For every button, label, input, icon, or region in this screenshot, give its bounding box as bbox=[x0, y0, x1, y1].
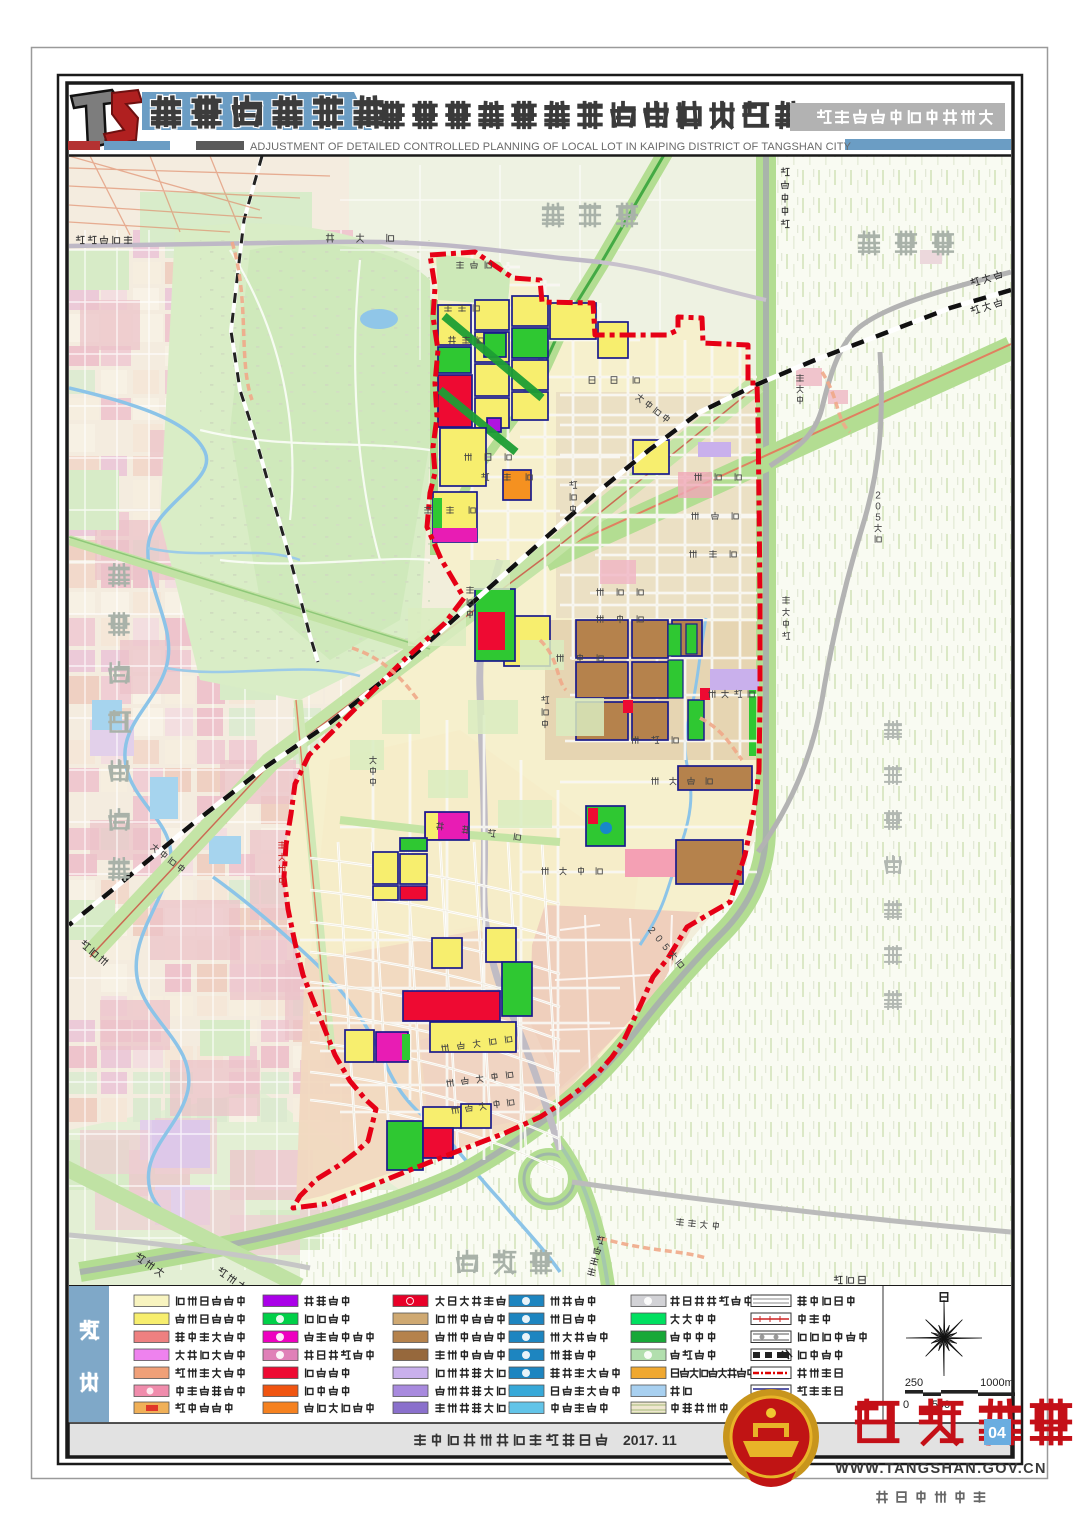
svg-text:ADJUSTMENT OF DETAILED CONTROL: ADJUSTMENT OF DETAILED CONTROLLED PLANNI… bbox=[250, 141, 852, 153]
svg-text:WWW.TANGSHAN.GOV.CN: WWW.TANGSHAN.GOV.CN bbox=[835, 1461, 1047, 1477]
svg-text:04: 04 bbox=[988, 1425, 1006, 1442]
svg-text:1000m: 1000m bbox=[980, 1377, 1014, 1389]
svg-text:0: 0 bbox=[875, 502, 881, 513]
svg-text:5: 5 bbox=[875, 513, 881, 524]
svg-text:2: 2 bbox=[875, 491, 881, 502]
svg-text:250: 250 bbox=[905, 1377, 923, 1389]
svg-text:0: 0 bbox=[903, 1399, 909, 1411]
svg-text:2017. 11: 2017. 11 bbox=[623, 1432, 677, 1448]
